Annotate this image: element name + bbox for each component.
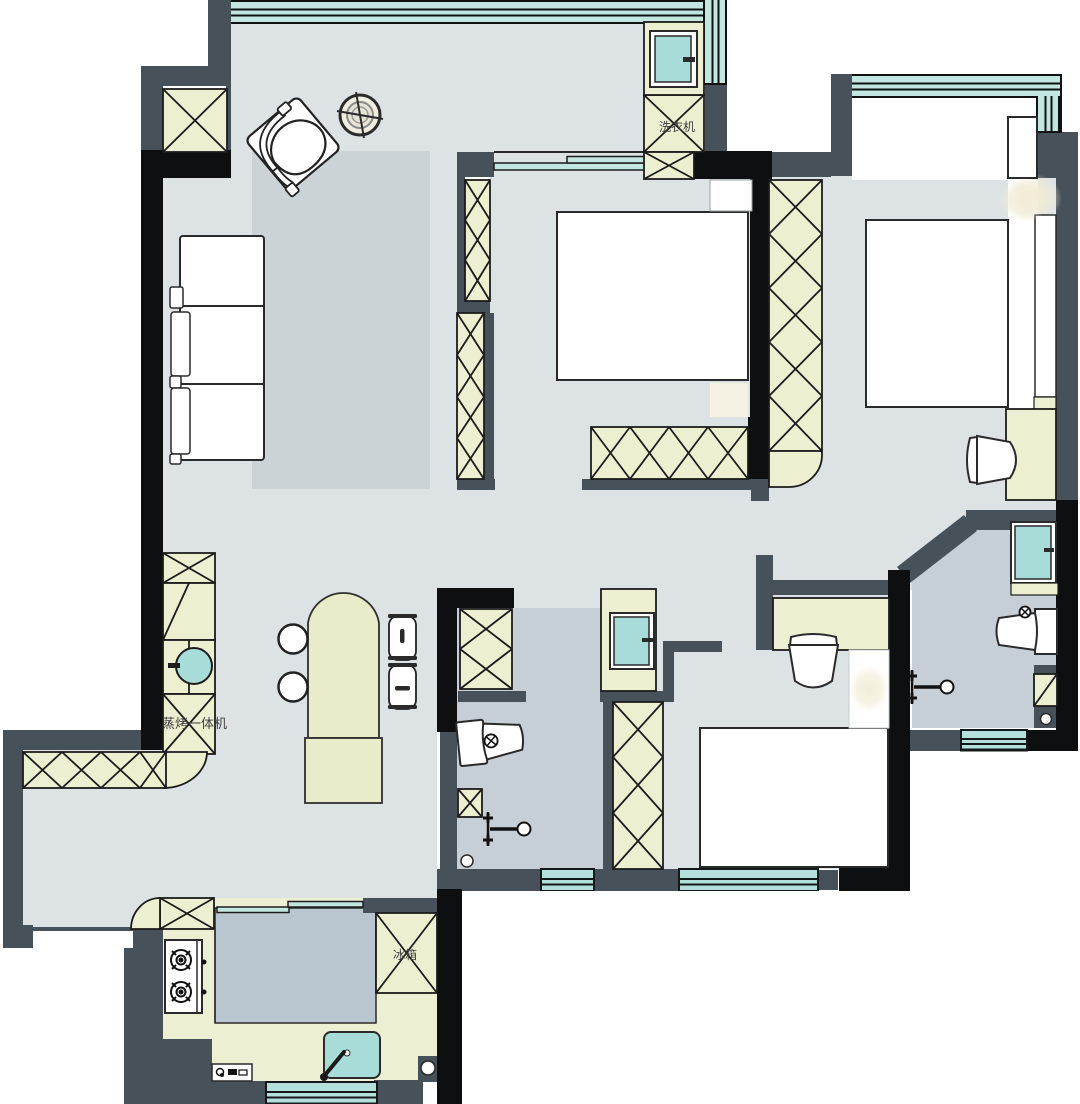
svg-text:冰箱: 冰箱 <box>393 947 417 962</box>
svg-text:蒸烤一体机: 蒸烤一体机 <box>162 716 227 731</box>
svg-text:洗衣机: 洗衣机 <box>659 119 695 134</box>
